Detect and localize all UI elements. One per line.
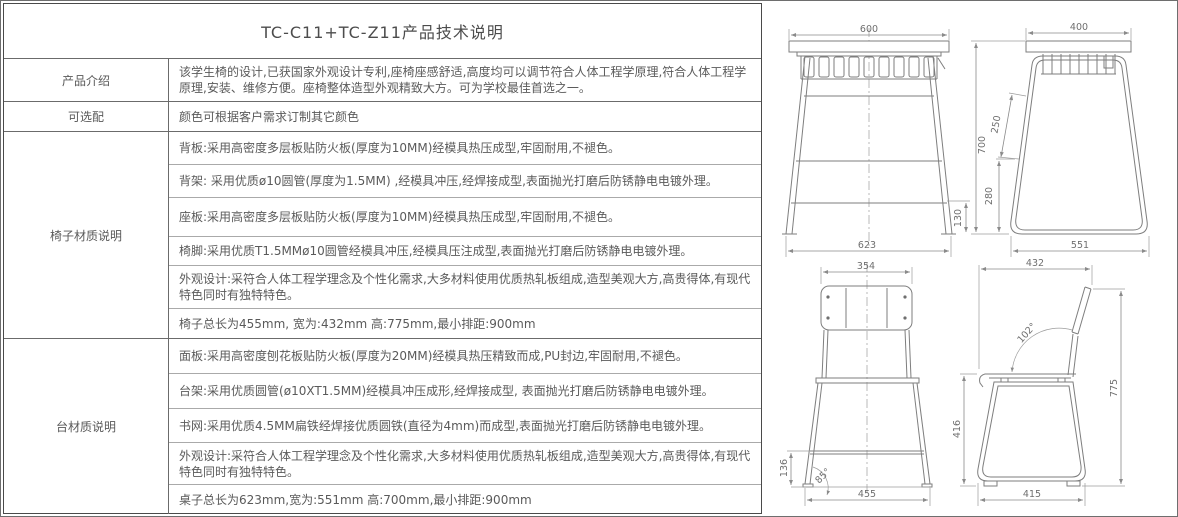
desktop [789,41,949,52]
spec-text-cell: 面板:采用高密度刨花板贴防火板(厚度为20MM)经模具热压精致而成,PU封边,牢… [169,339,761,374]
spec-text-cell: 背架: 采用优质ø10圆管(厚度为1.5MM) ,经模具冲压,经焊接成型,表面抛… [169,165,761,198]
desk-side-frame [1011,56,1148,234]
section-desk-material: 台材质说明 面板:采用高密度刨花板贴防火板(厚度为20MM)经模具热压精致而成,… [4,339,761,514]
dim-desk-side-bottom: 551 [1071,240,1089,251]
product-spec-sheet: TC-C11+TC-Z11产品技术说明 产品介绍 该学生椅的设计,已获国家外观设… [0,0,1178,517]
backrest-side [1068,287,1091,377]
dim-backrest-width: 354 [857,261,875,272]
book-net-side [1041,54,1116,74]
spec-text-cell: 书网:采用优质4.5MM扁铁经焊接优质圆铁(直径为4mm)而成型,表面抛光打磨后… [169,409,761,443]
dim-leg-angle: 85° [813,466,833,486]
spec-text-cell: 椅子总长为455mm, 宽为:432mm 高:775mm,最小排距:900mm [169,309,761,338]
book-net [801,56,945,79]
dim-back-angle: 102° [1015,321,1038,345]
spec-table: TC-C11+TC-Z11产品技术说明 产品介绍 该学生椅的设计,已获国家外观设… [3,3,762,514]
section-cells: 面板:采用高密度刨花板贴防火板(厚度为20MM)经模具热压精致而成,PU封边,牢… [169,339,761,514]
spec-text-cell: 背板:采用高密度多层板贴防火板(厚度为10MM)经模具热压成型,牢固耐用,不褪色… [169,132,761,165]
dim-desk-depth: 400 [1070,22,1088,33]
spec-text-cell: 台架:采用优质圆管(ø10XT1.5MM)经模具冲压成形,经焊接成型, 表面抛光… [169,374,761,409]
desk-front-view: 600 [782,24,970,257]
dim-chair-height: 775 [1109,379,1120,397]
chair-frame-side [978,382,1086,486]
chair-back-view: 354 [779,261,932,506]
technical-drawings: 600 [763,1,1178,517]
section-product-intro: 产品介绍 该学生椅的设计,已获国家外观设计专利,座椅座感舒适,高度均可以调节符合… [4,59,761,102]
dim-desk-height: 700 [977,136,988,154]
dim-chair-depth: 432 [1026,258,1044,269]
spec-text-cell: 颜色可根据客户需求订制其它颜色 [169,102,761,131]
spec-text-cell: 外观设计:采符合人体工程学理念及个性化需求,大多材料使用优质热轧板组成,造型美观… [169,443,761,485]
page-title: TC-C11+TC-Z11产品技术说明 [4,4,761,59]
dim-desk-leg-upper: 250 [990,115,1004,135]
dim-chair-base-depth: 415 [1023,489,1041,500]
backrest [821,286,912,330]
spec-text-cell: 外观设计:采符合人体工程学理念及个性化需求,大多材料使用优质热轧板组成,造型美观… [169,266,761,309]
spec-text-cell: 桌子总长为623mm,宽为:551mm 高:700mm,最小排距:900mm [169,485,761,514]
spec-text-cell: 椅脚:采用优质T1.5MMø10圆管经模具冲压,经模具压注成型,表面抛光打磨后防… [169,237,761,267]
dim-desk-leg-lower: 280 [984,187,995,205]
chair-frame-back [803,330,932,487]
chair-side-view: 432 102° [952,258,1125,506]
seat-side [980,374,1076,387]
section-cells: 背板:采用高密度多层板贴防火板(厚度为10MM)经模具热压成型,牢固耐用,不褪色… [169,132,761,338]
section-cells: 该学生椅的设计,已获国家外观设计专利,座椅座感舒适,高度均可以调节符合人体工程学… [169,59,761,101]
row-label-desk-material: 台材质说明 [4,339,169,514]
desktop-side [1026,41,1131,52]
dim-seat-height: 416 [952,420,963,438]
dim-desk-foot-height: 130 [953,209,964,227]
spec-text-cell: 该学生椅的设计,已获国家外观设计专利,座椅座感舒适,高度均可以调节符合人体工程学… [169,59,761,101]
dim-crossbar-height: 136 [779,459,790,477]
row-label-product-intro: 产品介绍 [4,59,169,101]
desk-side-view: 400 700 [971,22,1149,257]
dim-desk-bottom-width: 623 [858,240,876,251]
spec-text-cell: 座板:采用高密度多层板贴防火板(厚度为10MM)经模具热压成型,牢固耐用,不褪色… [169,198,761,237]
section-chair-material: 椅子材质说明 背板:采用高密度多层板贴防火板(厚度为10MM)经模具热压成型,牢… [4,132,761,339]
dim-desk-top-width: 600 [860,24,878,35]
section-cells: 颜色可根据客户需求订制其它颜色 [169,102,761,131]
section-optional: 可选配 颜色可根据客户需求订制其它颜色 [4,102,761,132]
dim-chair-bottom-width: 455 [858,489,876,500]
row-label-optional: 可选配 [4,102,169,131]
row-label-chair-material: 椅子材质说明 [4,132,169,338]
